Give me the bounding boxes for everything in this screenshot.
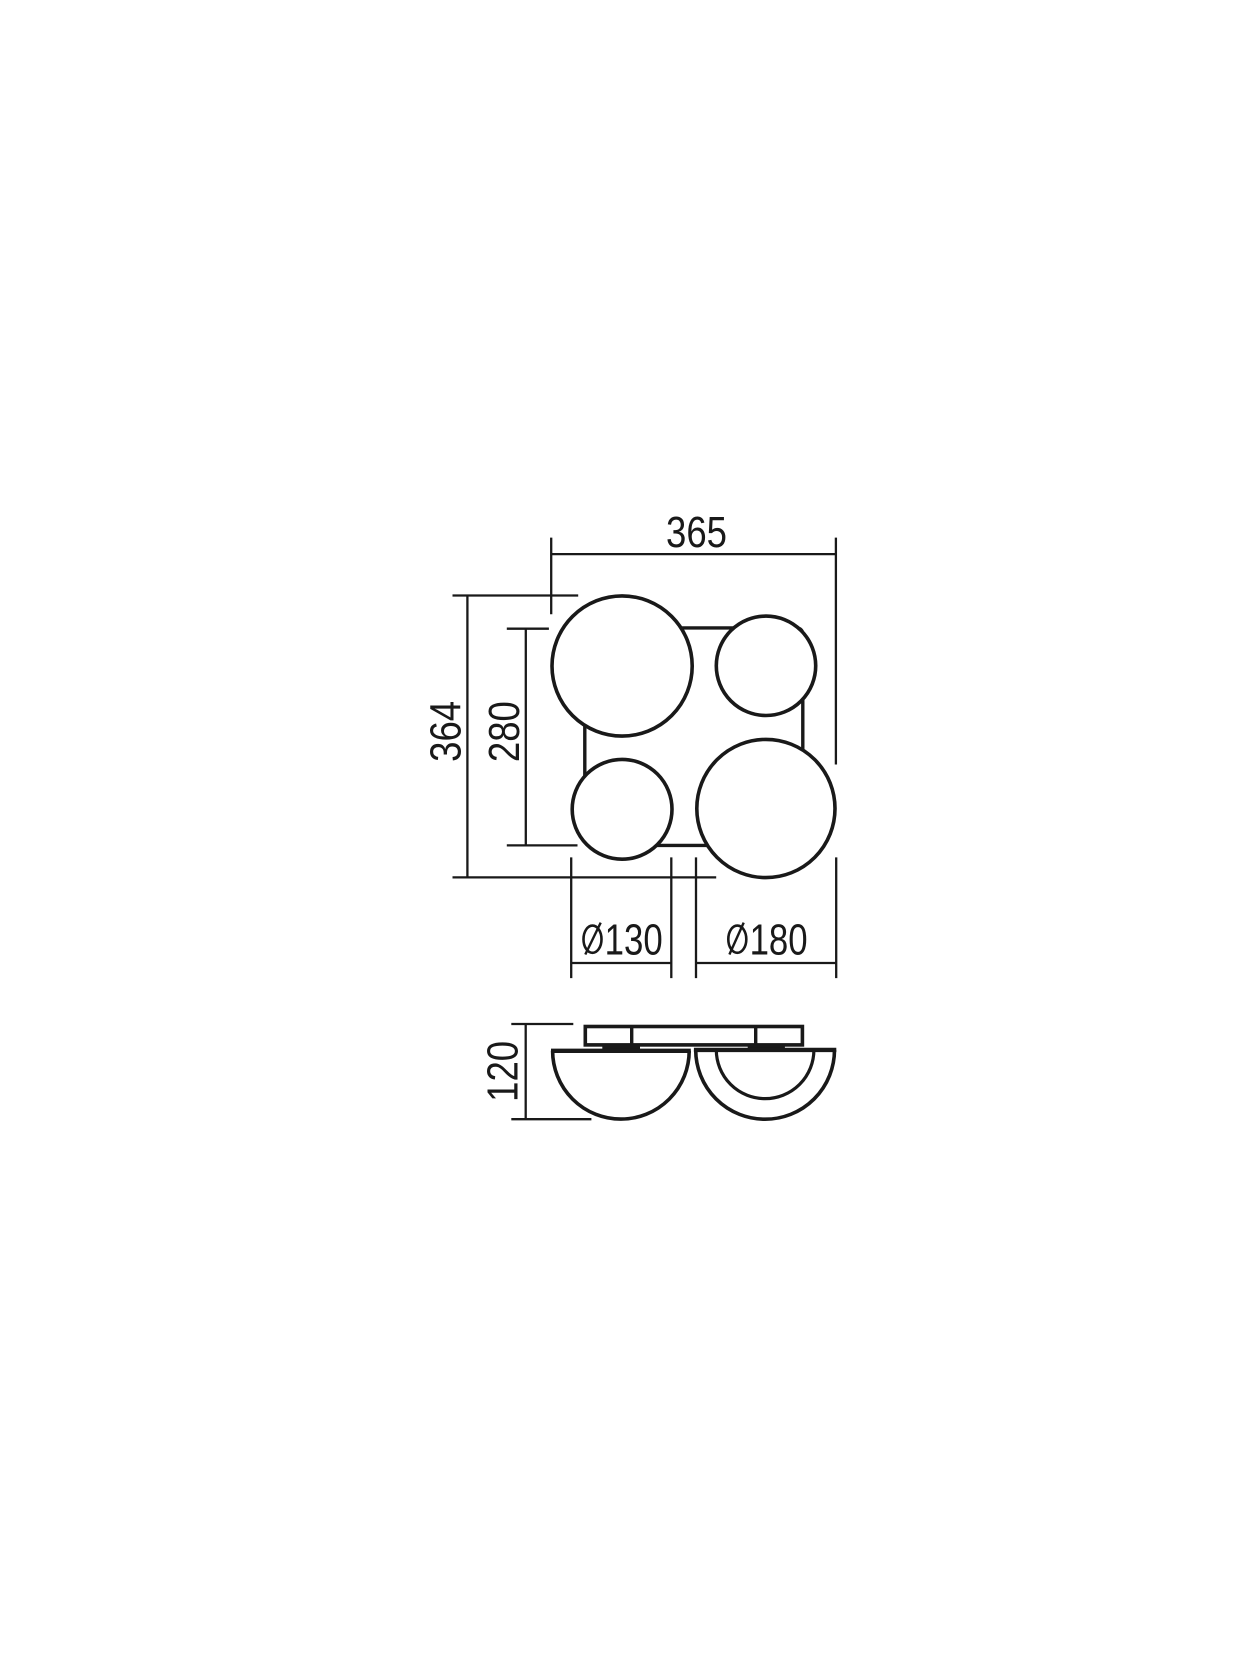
svg-text:130: 130: [605, 916, 663, 965]
svg-text:180: 180: [750, 916, 808, 965]
svg-text:280: 280: [480, 701, 529, 762]
svg-text:364: 364: [421, 701, 470, 762]
svg-text:120: 120: [479, 1041, 528, 1102]
svg-text:365: 365: [666, 508, 727, 557]
